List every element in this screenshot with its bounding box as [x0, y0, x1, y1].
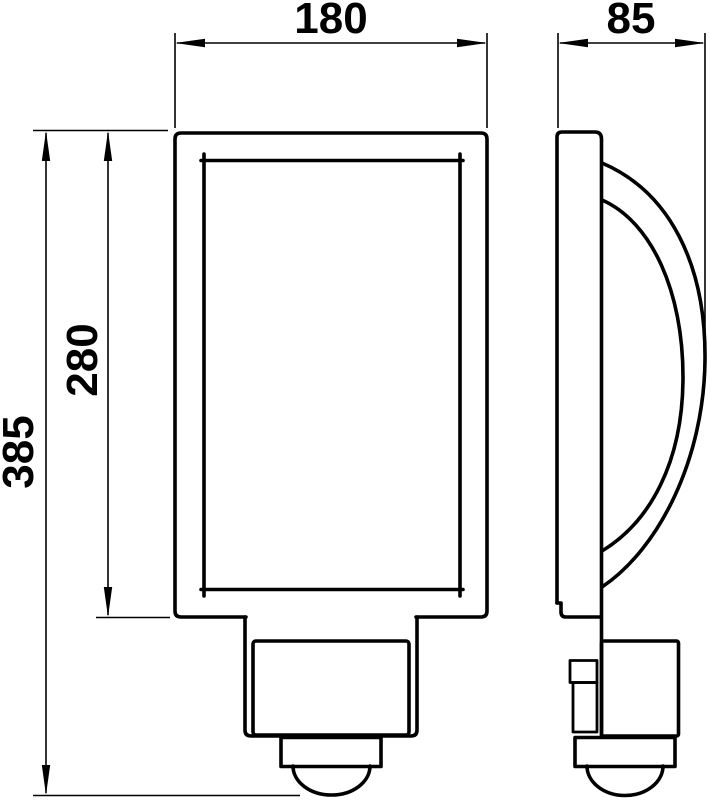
dim-total-height-arrow-top: [42, 131, 50, 161]
side-glass-outer-curve: [602, 163, 705, 587]
dim-total-height: 385: [0, 131, 300, 796]
dim-width: 180: [175, 0, 487, 128]
front-lens-holder: [281, 738, 381, 767]
dim-body-height-arrow-bottom: [104, 587, 112, 617]
side-lens-holder: [575, 738, 675, 767]
side-backplate: [557, 132, 602, 737]
side-backplate-bottom: [557, 603, 601, 617]
dim-width-arrow-left: [175, 39, 205, 47]
dimension-drawing: 180 85 385 280: [0, 0, 710, 800]
dim-depth: 85: [558, 0, 705, 352]
dim-body-height-arrow-top: [104, 131, 112, 161]
dim-width-arrow-right: [457, 39, 487, 47]
front-sensor-dome: [293, 766, 370, 795]
dim-depth-label: 85: [607, 0, 656, 43]
side-bracket-lower: [573, 683, 597, 733]
dim-width-label: 180: [294, 0, 367, 43]
dim-body-height-label: 280: [58, 323, 107, 396]
side-sensor-box: [602, 641, 679, 736]
front-view: [175, 133, 487, 795]
side-view: [557, 132, 705, 796]
front-sensor-box: [253, 641, 409, 735]
side-sensor-dome: [587, 766, 663, 796]
front-sensor-housing: [245, 617, 417, 736]
drawing-canvas: 180 85 385 280: [0, 0, 710, 800]
dim-depth-arrow-left: [558, 39, 588, 47]
dim-body-height: 280: [58, 131, 170, 618]
dim-depth-arrow-right: [675, 39, 705, 47]
dim-total-height-label: 385: [0, 415, 43, 488]
dim-total-height-arrow-bottom: [42, 765, 50, 795]
side-bracket-upper: [570, 661, 597, 683]
side-glass-inner-curve: [602, 200, 683, 551]
front-body-outline: [175, 133, 487, 617]
